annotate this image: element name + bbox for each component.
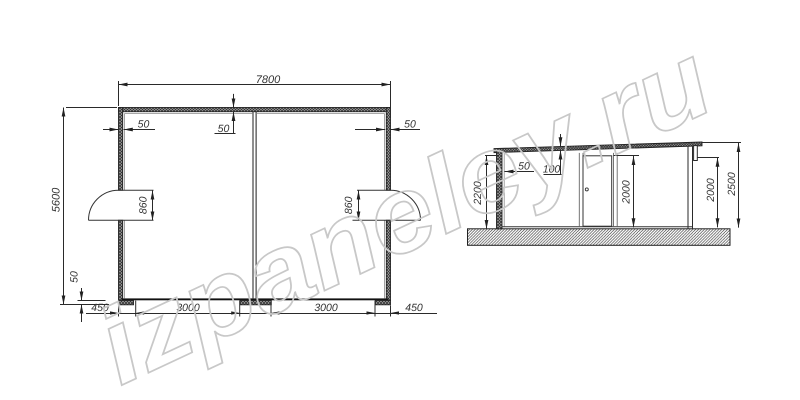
svg-text:7800: 7800 bbox=[256, 74, 281, 86]
svg-text:450: 450 bbox=[405, 302, 423, 314]
svg-text:50: 50 bbox=[404, 118, 416, 130]
svg-text:2000: 2000 bbox=[705, 178, 717, 203]
svg-text:50: 50 bbox=[138, 118, 150, 130]
svg-text:5600: 5600 bbox=[51, 187, 63, 212]
svg-text:2000: 2000 bbox=[621, 180, 633, 205]
svg-text:50: 50 bbox=[218, 123, 230, 135]
svg-text:2500: 2500 bbox=[726, 172, 738, 197]
svg-text:860: 860 bbox=[138, 196, 150, 214]
svg-text:50: 50 bbox=[69, 271, 81, 283]
